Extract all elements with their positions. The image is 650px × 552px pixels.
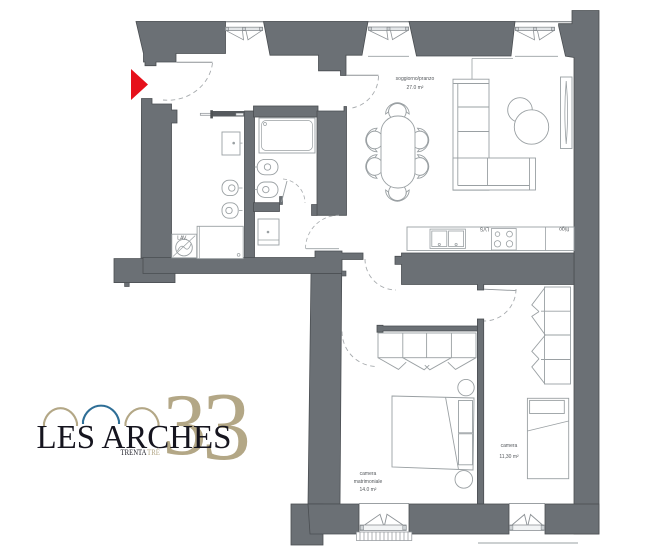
svg-text:LVS: LVS [479, 225, 489, 231]
svg-text:camera: camera [501, 443, 518, 449]
svg-text:11,30 m²: 11,30 m² [499, 454, 519, 460]
svg-text:TRENTA: TRENTA [121, 448, 147, 457]
svg-text:frigo: frigo [559, 225, 569, 231]
svg-text:TRÉ: TRÉ [147, 447, 160, 457]
svg-text:camera: camera [360, 471, 377, 477]
svg-text:LAV.: LAV. [177, 236, 187, 242]
svg-text:soggiorno/pranzo: soggiorno/pranzo [396, 76, 435, 82]
svg-text:27.0 m²: 27.0 m² [407, 85, 424, 91]
svg-text:matrimoniale: matrimoniale [354, 479, 383, 485]
svg-text:14.0 m²: 14.0 m² [360, 487, 377, 493]
